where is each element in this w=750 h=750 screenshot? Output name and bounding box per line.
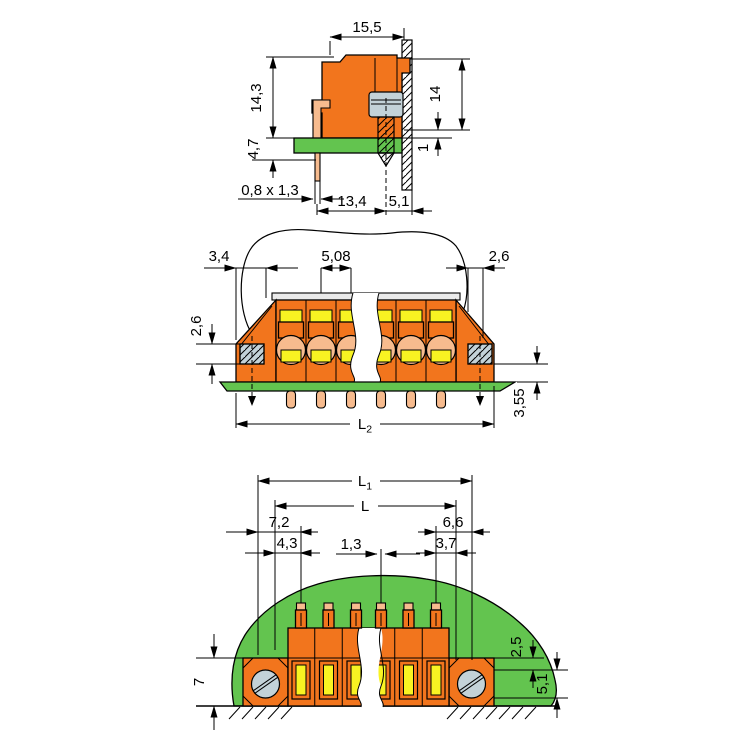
solder-pin (437, 391, 446, 408)
dim-label-left-offset: 3,4 (209, 248, 230, 265)
dim-label-right-hole: 3,7 (436, 535, 457, 552)
contact-window (281, 350, 301, 362)
mounting-flange-right (456, 300, 494, 382)
dim-label-board-clearance: 1 (415, 144, 432, 152)
dim-label-board-standoff: 3,55 (511, 388, 528, 417)
ground-hatching (229, 707, 536, 719)
dim-label-pin-width: 1,3 (341, 536, 362, 553)
screw-tip-right (476, 396, 484, 406)
side-view (294, 40, 412, 190)
dim-label-length2: L2 (358, 416, 372, 436)
dim-l2-sub: 2 (366, 424, 372, 436)
solder-pins-front (287, 391, 446, 408)
contact-window (311, 350, 331, 362)
terminal-block-dimensional-drawing: 15,5 14,3 4,7 0,8 x 1,3 13,4 5,1 14 1 3,… (0, 0, 750, 750)
solder-pin (317, 391, 326, 408)
hatch-tick (499, 707, 510, 719)
wire-entry-window (430, 310, 452, 322)
mounting-screw-right (458, 670, 486, 698)
hatch-tick (512, 707, 523, 719)
hatch-tick (460, 707, 471, 719)
hatch-tick (525, 707, 536, 719)
mounting-view (196, 576, 556, 719)
dim-label-overall-width: 15,5 (352, 19, 381, 36)
hatch-tick (229, 707, 240, 719)
hatch-tick (255, 707, 266, 719)
dim-label-right-edge: 6,6 (443, 514, 464, 531)
hatch-tick (447, 707, 458, 719)
solder-pin (287, 391, 296, 408)
dim-label-screw-size: 2,6 (188, 316, 205, 337)
contact-window (296, 665, 306, 695)
pin-cap (377, 603, 386, 610)
dim-label-pin-to-screw: 13,4 (337, 193, 366, 210)
wire-entry-window (310, 310, 332, 322)
solder-pin (407, 391, 416, 408)
dim-l1-sub: 1 (366, 481, 372, 493)
pin-cap (404, 603, 413, 610)
contact-window (404, 665, 414, 695)
dim-label-height-above-board: 14,3 (248, 83, 265, 112)
dim-label-screw-top-offset: 2,5 (508, 637, 525, 658)
contact-window (401, 350, 421, 362)
solder-pin-lower (315, 153, 320, 181)
hatch-tick (486, 707, 497, 719)
hatch-tick (473, 707, 484, 719)
dim-label-length: L (361, 498, 369, 515)
dim-label-pin-protrusion: 4,7 (245, 139, 262, 160)
dim-label-length1: L1 (358, 473, 372, 493)
pin-cap (432, 603, 441, 610)
dim-label-left-edge: 7,2 (269, 514, 290, 531)
dim-label-right-offset: 2,6 (489, 248, 510, 265)
contact-window (324, 665, 334, 695)
dim-l1-main: L (358, 473, 366, 490)
pin-cap (352, 603, 361, 610)
dim-label-panel-height: 14 (427, 86, 444, 103)
pin-cap (297, 603, 306, 610)
contact-window (431, 350, 451, 362)
front-view (220, 230, 515, 408)
dim-label-screw-to-panel: 5,1 (389, 193, 410, 210)
dim-label-flange-height: 7 (191, 678, 208, 686)
dim-l2-main: L (358, 416, 366, 433)
solder-pin (377, 391, 386, 408)
dim-label-pitch: 5,08 (321, 248, 350, 265)
wire-entry-window (400, 310, 422, 322)
solder-pin (347, 391, 356, 408)
mounting-screw-left (252, 670, 280, 698)
screw-tip-left (248, 396, 256, 406)
wire-entry-window (280, 310, 302, 322)
dim-label-left-hole: 4,3 (277, 535, 298, 552)
dim-label-pin-section: 0,8 x 1,3 (241, 182, 299, 199)
dim-label-screw-height: 5,1 (534, 674, 551, 695)
pcb-board-front (220, 382, 515, 391)
pin-cap (324, 603, 333, 610)
hatch-tick (281, 707, 292, 719)
hatch-tick (268, 707, 279, 719)
contact-window (431, 665, 441, 695)
hatch-tick (242, 707, 253, 719)
